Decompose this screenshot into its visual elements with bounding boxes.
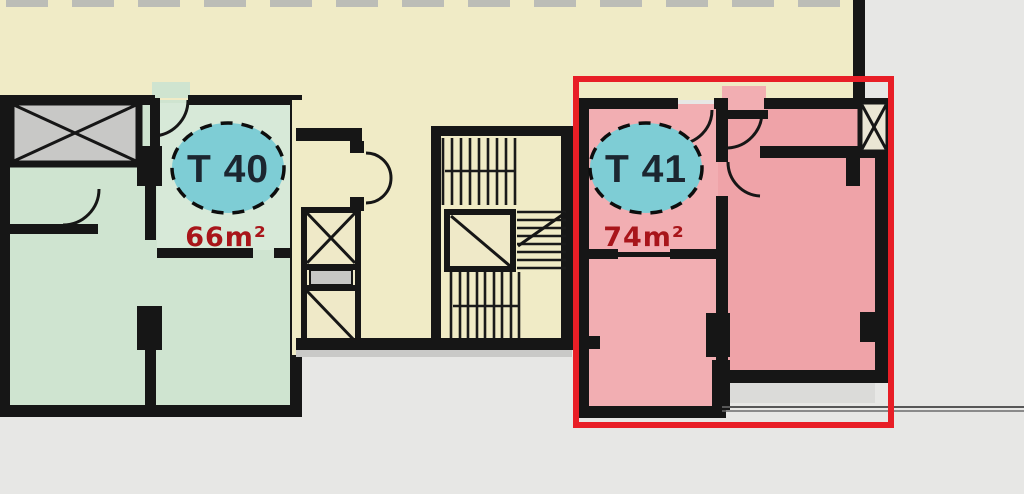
- unit-label: T 40: [187, 148, 269, 191]
- door-jamb: [350, 141, 364, 153]
- unit-badge-t40[interactable]: T 40: [172, 123, 284, 213]
- unit-area-label: 74m²: [603, 222, 685, 253]
- stair-elevator-icon: [447, 212, 513, 269]
- core-bottom-wall: [296, 338, 572, 350]
- corridor-band: [0, 0, 858, 100]
- t41-ledge: [728, 383, 875, 403]
- unit-label: T 41: [605, 148, 687, 191]
- unit-badge-t41[interactable]: T 41: [590, 123, 702, 213]
- elevator-shaft-icon: [11, 102, 139, 164]
- unit-area-label: 66m²: [185, 222, 267, 253]
- t41-door-patch: [722, 86, 766, 110]
- service-shaft-icon: [860, 102, 888, 152]
- core-corridor-stairs: [292, 100, 573, 357]
- service-shaft-icon: [302, 210, 360, 346]
- t40-door-patch: [152, 82, 190, 98]
- floorplan-canvas: T 40 66m² T 41 74m²: [0, 0, 1024, 494]
- corridor-end-wall: [853, 0, 865, 102]
- core-ledge: [296, 350, 572, 357]
- corridor-wall: [296, 128, 362, 141]
